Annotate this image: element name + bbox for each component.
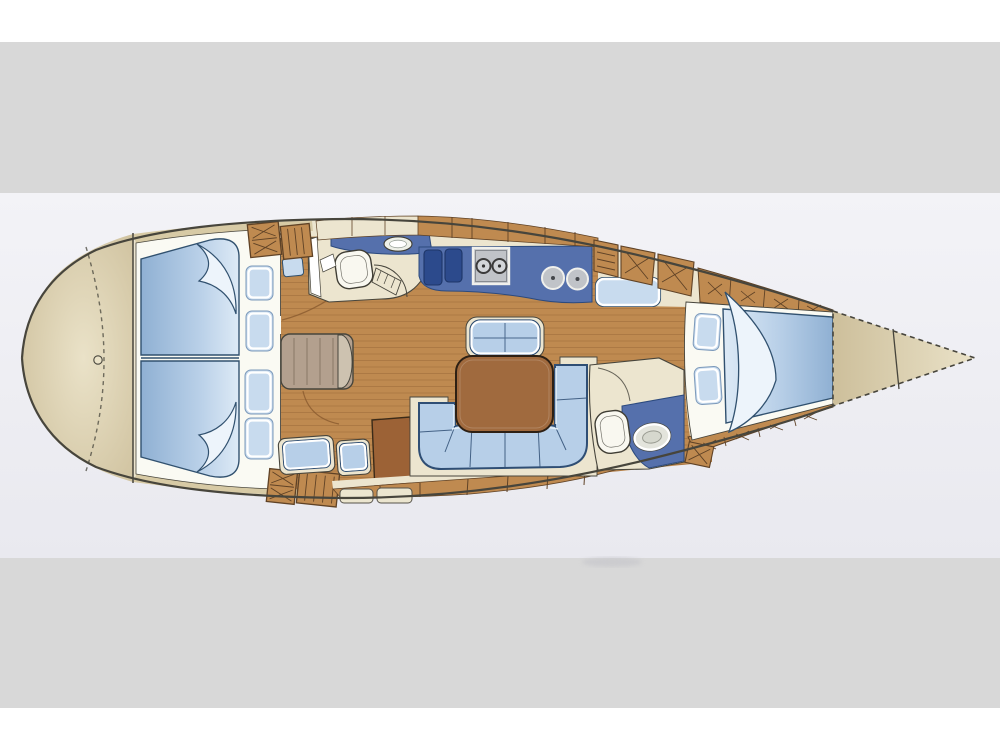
basin-bowl	[390, 240, 407, 248]
nav-seat	[281, 334, 353, 389]
pillow	[246, 266, 273, 300]
yacht-floorplan-image	[0, 0, 1000, 750]
hull-shadow	[582, 557, 642, 567]
stove	[473, 248, 509, 284]
pillow	[246, 311, 273, 351]
pillow	[245, 418, 273, 459]
side-bench	[336, 439, 371, 476]
steering-pedestal	[94, 356, 102, 364]
aft-top-lockers	[247, 222, 312, 260]
floorplan-svg	[0, 0, 1000, 750]
toilet	[334, 249, 375, 291]
bottom-gray-band	[0, 558, 1000, 708]
galley-sink-2	[445, 249, 462, 282]
salon-table	[456, 356, 553, 432]
aft-cabin-starboard-berth	[141, 361, 239, 477]
top-gray-band	[0, 42, 1000, 193]
salon-forward-seat	[466, 317, 544, 358]
companionway-step	[340, 489, 373, 503]
galley-sink	[424, 250, 442, 285]
aft-cabins	[136, 229, 282, 489]
toilet-2	[593, 409, 632, 455]
pillow	[694, 366, 723, 405]
aft-bottom-lockers	[266, 469, 339, 507]
shelf-box	[282, 257, 304, 277]
aft-cabin-port-berth	[141, 239, 239, 355]
pillow	[693, 313, 721, 351]
nav-bench	[278, 435, 335, 475]
pillow	[245, 370, 273, 414]
